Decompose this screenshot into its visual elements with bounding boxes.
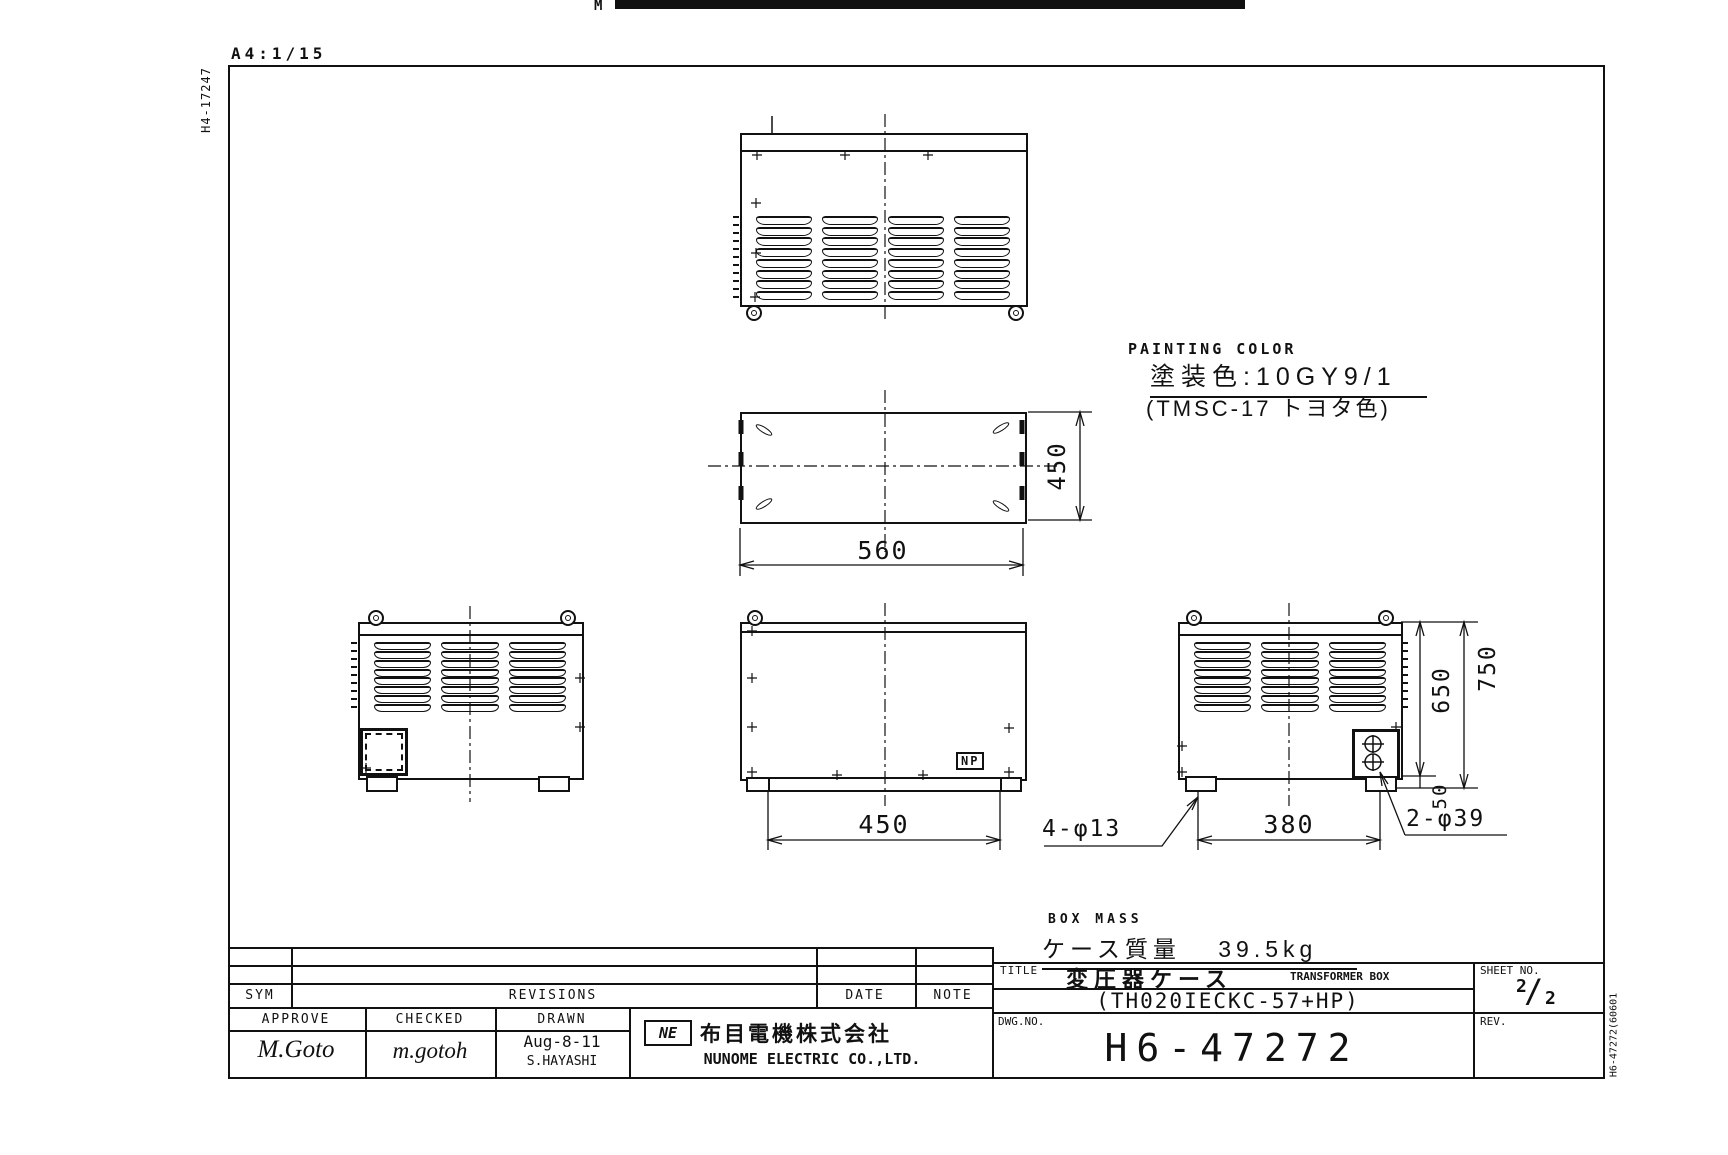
vent-slat [1329, 686, 1386, 694]
vent-slat [1329, 677, 1386, 685]
vent-slat [954, 248, 1010, 257]
lid-seam-line [742, 631, 1025, 633]
vent-slat [756, 291, 812, 300]
vent-slat [1194, 669, 1251, 677]
vent-column [1329, 642, 1386, 712]
vent-column [822, 216, 878, 300]
vent-slat [954, 291, 1010, 300]
vent-slat [1261, 686, 1318, 694]
vent-slat [888, 259, 944, 268]
vent-slat [1194, 660, 1251, 668]
sym-header: SYM [245, 988, 274, 1003]
lid-seam-line [360, 634, 582, 636]
view-rear-elevation [740, 133, 1028, 307]
vent-slat [441, 660, 498, 668]
nameplate-label: NP [956, 752, 984, 770]
company-name-en: NUNOME ELECTRIC CO.,LTD. [704, 1050, 921, 1068]
rule-line [816, 947, 818, 1009]
vent-slat [822, 237, 878, 246]
terminal-box [360, 728, 408, 776]
drawing-model: (TH020IECKC-57+HP) [1096, 989, 1360, 1013]
vent-column [954, 216, 1010, 300]
vent-slat [822, 259, 878, 268]
vent-slat [441, 686, 498, 694]
base-divider [768, 779, 770, 790]
vent-slat [1261, 695, 1318, 703]
vent-slat [822, 227, 878, 236]
company-name-jp: 布目電機株式会社 [700, 1018, 892, 1048]
title-label: TITLE [1000, 964, 1038, 977]
vent-slat [954, 227, 1010, 236]
dim-gland-holes: 2-φ39 [1406, 806, 1485, 832]
vent-slat [509, 686, 566, 694]
vent-slat [374, 695, 431, 703]
vent-slat [509, 642, 566, 650]
vent-slat [1194, 695, 1251, 703]
dim-base-holes: 4-φ13 [1042, 816, 1121, 842]
foot-pad [1365, 776, 1397, 792]
vent-slat [888, 291, 944, 300]
vent-slat [756, 259, 812, 268]
lifting-lug [368, 610, 384, 626]
vent-slat [1194, 704, 1251, 712]
rule-line [915, 947, 917, 1009]
drawing-title-en: TRANSFORMER BOX [1290, 970, 1389, 983]
vent-slat [374, 677, 431, 685]
foot-pad [538, 776, 570, 792]
revisions-header: REVISIONS [509, 988, 597, 1003]
vent-grid-left [374, 642, 566, 712]
vent-slat [888, 280, 944, 289]
vent-slat [756, 270, 812, 279]
vent-slat [1194, 686, 1251, 694]
view-plan [740, 412, 1027, 524]
vent-slat [888, 216, 944, 225]
dwg-label: DWG.NO. [998, 1015, 1044, 1028]
dim-plan-depth: 450 [1043, 441, 1071, 490]
vent-slat [954, 237, 1010, 246]
dim-front-bolt-span: 450 [858, 810, 909, 839]
vent-slat [1194, 651, 1251, 659]
vent-slat [822, 270, 878, 279]
rule-line [228, 983, 992, 985]
vent-column [756, 216, 812, 300]
drawn-name: S.HAYASHI [527, 1054, 597, 1069]
rule-line [228, 965, 992, 967]
vent-slat [822, 280, 878, 289]
vent-slat [441, 695, 498, 703]
vent-slat [1261, 704, 1318, 712]
cable-gland-plate [1352, 729, 1400, 779]
lifting-lug [1186, 610, 1202, 626]
vent-grid-rear [756, 216, 1010, 300]
scale-label: A4:1/15 [231, 44, 326, 63]
vent-slat [1329, 695, 1386, 703]
scan-artifact-bar [615, 0, 1245, 9]
vent-slat [374, 669, 431, 677]
vent-slat [954, 270, 1010, 279]
approve-signature: M.Goto [257, 1036, 334, 1064]
vent-column [441, 642, 498, 712]
vent-slat [888, 227, 944, 236]
rule-line [1473, 962, 1475, 1077]
lifting-lug [560, 610, 576, 626]
lifting-lug [747, 610, 763, 626]
vent-slat [822, 216, 878, 225]
vent-slat [374, 660, 431, 668]
painting-color-note: (TMSC-17 トヨタ色) [1146, 391, 1391, 423]
dwg-number: H6-47272 [1104, 1026, 1359, 1070]
vent-slat [1261, 677, 1318, 685]
margin-code-right: H6-47272(60601 [1609, 993, 1620, 1077]
vent-slat [374, 651, 431, 659]
drawn-header: DRAWN [537, 1012, 586, 1027]
lifting-lug [1378, 610, 1394, 626]
drawn-date: Aug-8-11 [523, 1032, 600, 1051]
vent-slat [1329, 669, 1386, 677]
vent-slat [509, 695, 566, 703]
vent-slat [441, 651, 498, 659]
sheet-slash: / [1524, 972, 1543, 1010]
foot-pad [1185, 776, 1217, 792]
vent-slat [441, 642, 498, 650]
lid-seam-line [1180, 634, 1401, 636]
dim-side-bolt-span: 380 [1263, 810, 1314, 839]
rule-line [365, 1007, 367, 1077]
vent-slat [509, 669, 566, 677]
vent-slat [374, 686, 431, 694]
vent-slat [1329, 660, 1386, 668]
rev-label: REV. [1480, 1015, 1507, 1028]
foot-pad [366, 776, 398, 792]
margin-code-left: H4-17247 [199, 67, 213, 133]
vent-slat [954, 216, 1010, 225]
vent-column [1194, 642, 1251, 712]
vent-slat [1329, 651, 1386, 659]
vent-slat [1194, 642, 1251, 650]
vent-slat [1261, 660, 1318, 668]
vent-slat [954, 259, 1010, 268]
vent-slat [509, 651, 566, 659]
vent-slat [888, 248, 944, 257]
rule-line [228, 1007, 992, 1009]
vent-slat [1329, 704, 1386, 712]
dim-plan-width: 560 [857, 536, 908, 565]
vent-slat [509, 704, 566, 712]
vent-slat [441, 704, 498, 712]
vent-slat [822, 248, 878, 257]
base-divider [1000, 779, 1002, 790]
base-channel [746, 777, 1022, 792]
vent-slat [509, 677, 566, 685]
lid-seam-line [742, 150, 1026, 152]
fin-edge-rear [733, 216, 739, 302]
box-mass-label: BOX MASS [1048, 912, 1143, 927]
vent-slat [756, 216, 812, 225]
checked-header: CHECKED [396, 1012, 465, 1027]
vent-slat [888, 270, 944, 279]
vent-slat [441, 677, 498, 685]
vent-slat [1329, 642, 1386, 650]
vent-column [509, 642, 566, 712]
vent-slat [1261, 669, 1318, 677]
fin-edge-left [351, 642, 357, 714]
vent-slat [756, 280, 812, 289]
vent-slat [756, 227, 812, 236]
vent-slat [1261, 642, 1318, 650]
dim-overall-height: 750 [1475, 644, 1501, 692]
vent-column [888, 216, 944, 300]
company-logo: NE [644, 1020, 692, 1046]
rule-line [629, 1007, 631, 1077]
sheet-denominator: 2 [1545, 988, 1556, 1009]
vent-slat [756, 237, 812, 246]
terminal-box-inner [365, 733, 403, 771]
checked-signature: m.gotoh [393, 1038, 468, 1064]
rule-line [495, 1007, 497, 1077]
vent-slat [756, 248, 812, 257]
lifting-lug [1008, 305, 1024, 321]
vent-grid-right [1194, 642, 1386, 712]
scan-artifact-text: M [594, 0, 602, 14]
painting-color-label: PAINTING COLOR [1128, 340, 1296, 358]
vent-slat [1261, 651, 1318, 659]
vent-column [374, 642, 431, 712]
dim-base-height: 50 [1429, 783, 1451, 810]
dim-body-height: 650 [1429, 666, 1455, 714]
drawing-sheet: M A4:1/15 H4-17247 H6-47272(60601 NP [0, 0, 1728, 1155]
lifting-lug [746, 305, 762, 321]
vent-slat [1194, 677, 1251, 685]
vent-slat [509, 660, 566, 668]
approve-header: APPROVE [262, 1012, 331, 1027]
date-header: DATE [845, 988, 884, 1003]
rule-line [291, 947, 293, 1009]
rule-line [228, 947, 992, 949]
vent-slat [441, 669, 498, 677]
vent-slat [954, 280, 1010, 289]
vent-slat [822, 291, 878, 300]
vent-column [1261, 642, 1318, 712]
vent-slat [374, 704, 431, 712]
fin-edge-right [1402, 642, 1408, 714]
note-header: NOTE [933, 988, 972, 1003]
vent-slat [888, 237, 944, 246]
vent-slat [374, 642, 431, 650]
